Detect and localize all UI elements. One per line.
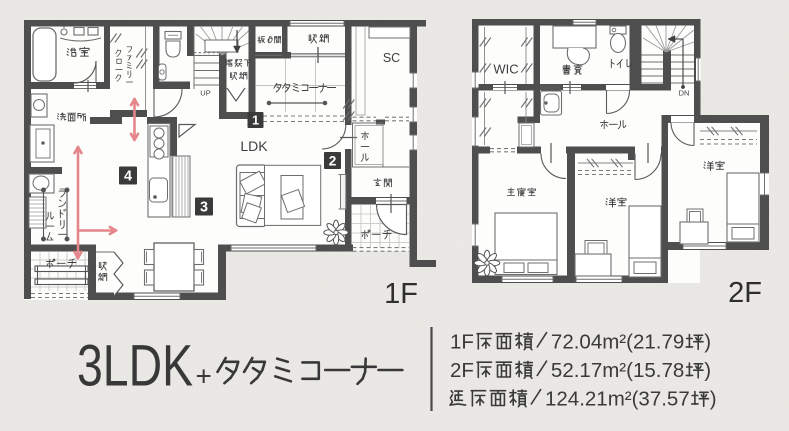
svg-text:52.17m²(15.78: 52.17m²(15.78: [551, 359, 684, 382]
svg-text:SC: SC: [383, 51, 400, 65]
svg-text:2F: 2F: [450, 359, 474, 382]
svg-text:124.21m²(37.57: 124.21m²(37.57: [545, 388, 690, 411]
svg-text:72.04m²(21.79: 72.04m²(21.79: [551, 331, 684, 354]
svg-text:1: 1: [252, 112, 259, 127]
svg-text:3: 3: [200, 200, 208, 216]
svg-text:2: 2: [329, 153, 337, 168]
svg-text:): ): [704, 359, 711, 382]
svg-text:1F: 1F: [384, 278, 418, 310]
svg-text:DN: DN: [679, 89, 690, 98]
svg-text:1F: 1F: [450, 331, 474, 354]
svg-text:WIC: WIC: [493, 62, 518, 77]
svg-text:3LDK: 3LDK: [77, 334, 193, 399]
svg-text:+: +: [196, 361, 212, 392]
svg-text:LDK: LDK: [240, 138, 268, 154]
svg-text:2F: 2F: [728, 277, 762, 309]
svg-text:UP: UP: [200, 89, 210, 98]
svg-text:4: 4: [124, 169, 132, 185]
svg-text:): ): [704, 331, 711, 354]
svg-text:): ): [710, 388, 717, 411]
